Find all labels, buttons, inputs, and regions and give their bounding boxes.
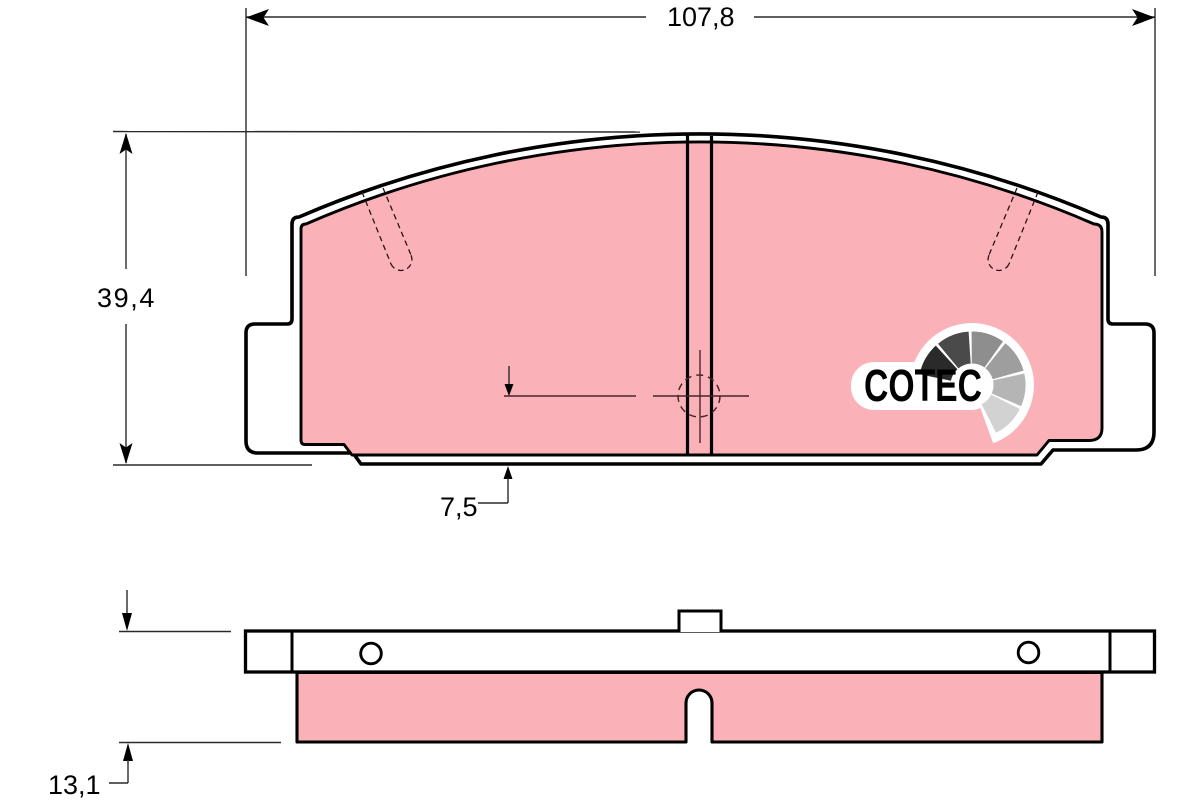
svg-text:13,1: 13,1 (48, 770, 101, 800)
svg-text:107,8: 107,8 (667, 2, 735, 32)
svg-text:39,4: 39,4 (97, 283, 156, 313)
svg-text:7,5: 7,5 (440, 492, 478, 522)
svg-text:COTEC: COTEC (864, 360, 982, 411)
